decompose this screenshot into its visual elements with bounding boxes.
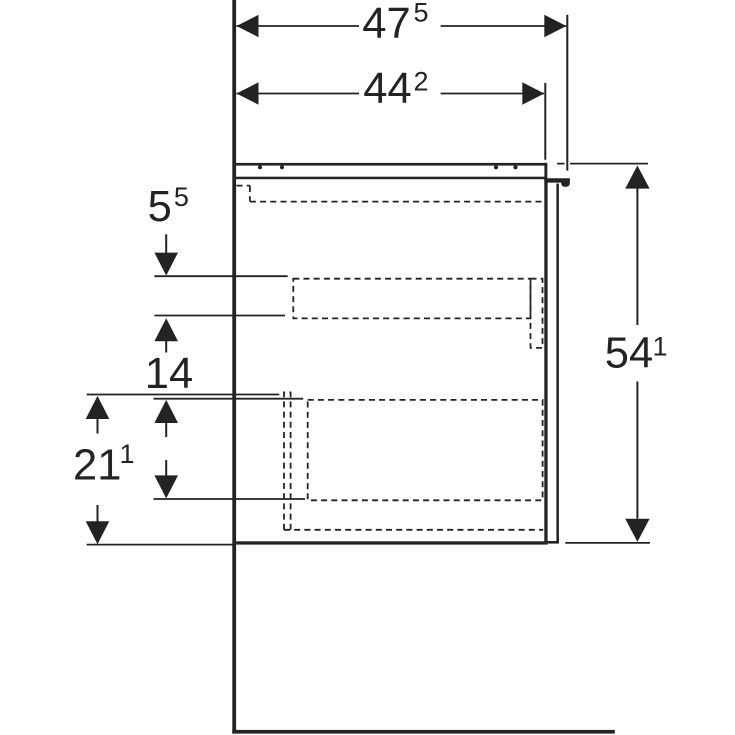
svg-text:5: 5 [148, 183, 172, 231]
svg-text:1: 1 [120, 439, 135, 469]
svg-text:2: 2 [414, 67, 429, 97]
svg-text:47: 47 [362, 0, 410, 48]
svg-text:5: 5 [174, 182, 189, 212]
svg-text:5: 5 [414, 0, 429, 28]
svg-text:54: 54 [605, 330, 653, 378]
svg-text:14: 14 [145, 350, 193, 398]
svg-text:21: 21 [73, 442, 121, 490]
svg-text:44: 44 [363, 65, 411, 113]
svg-text:1: 1 [653, 332, 668, 362]
